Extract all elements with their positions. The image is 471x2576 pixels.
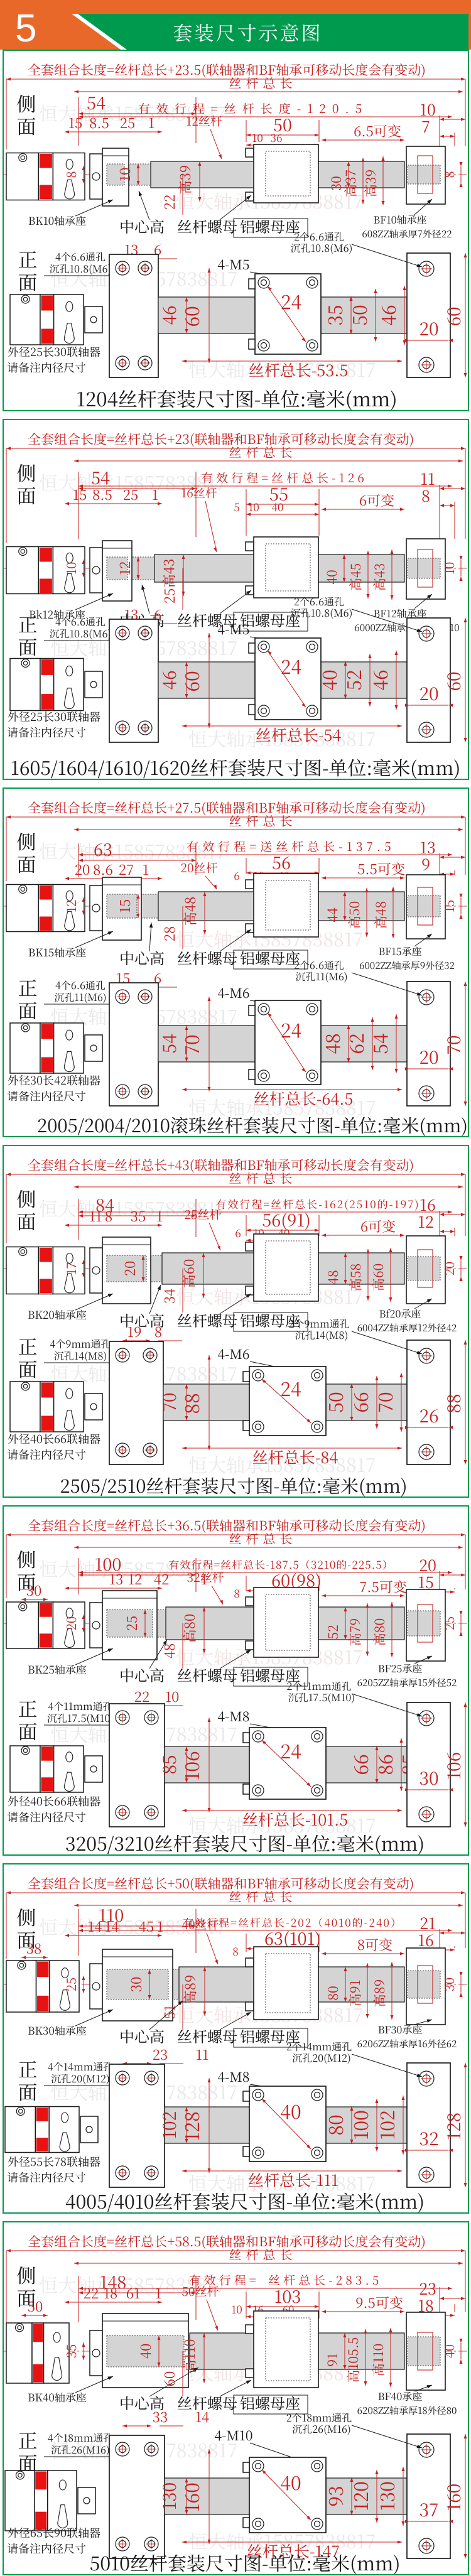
svg-text:5: 5	[15, 7, 36, 50]
